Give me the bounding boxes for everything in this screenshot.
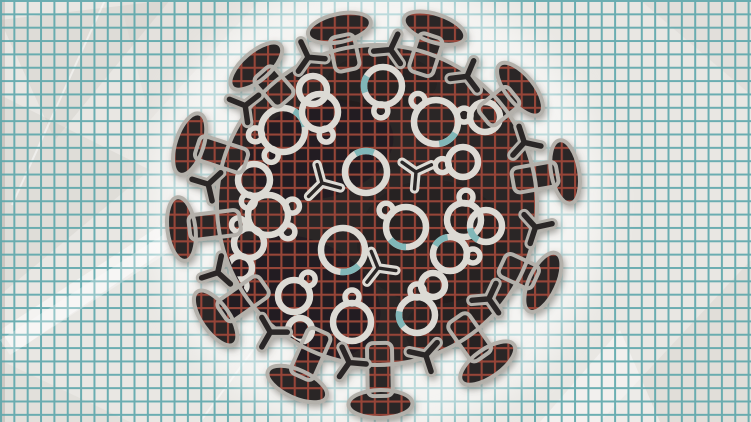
coronavirus-graph-paper-illustration: [0, 0, 751, 422]
illustration-canvas: [0, 0, 751, 422]
